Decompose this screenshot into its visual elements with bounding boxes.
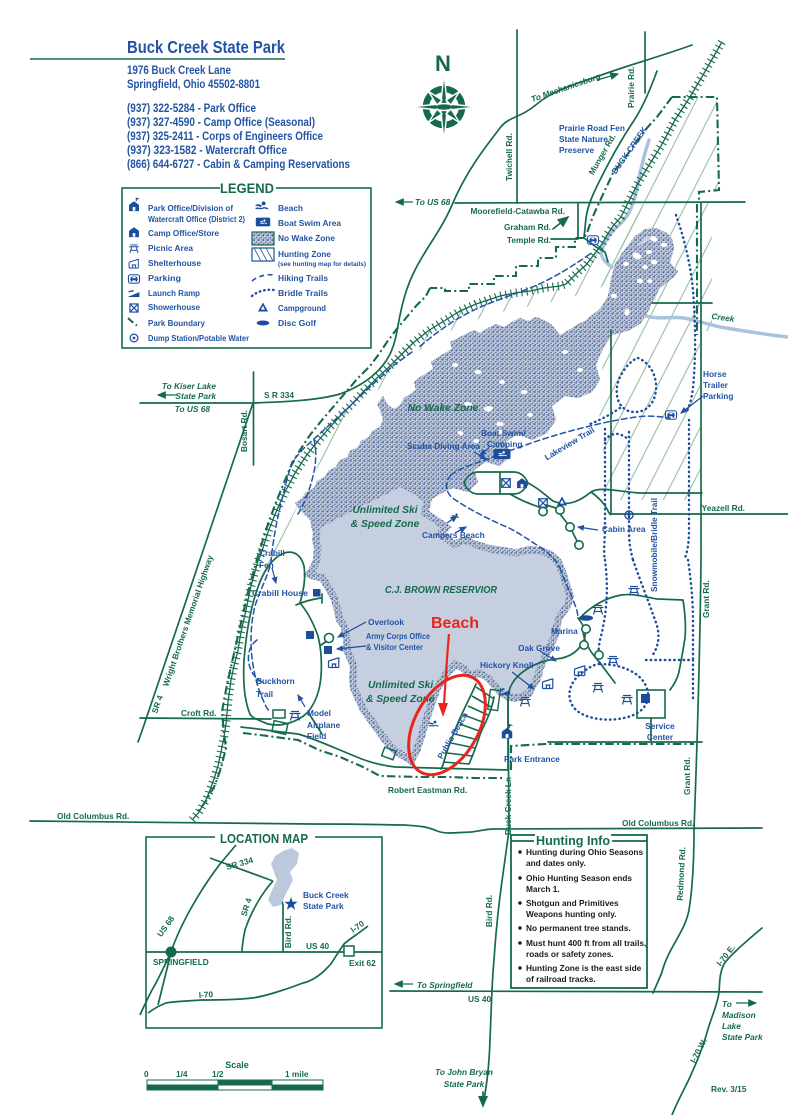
svg-text:& Visitor Center: & Visitor Center [366, 642, 424, 652]
svg-text:roads or safety zones.: roads or safety zones. [526, 949, 614, 959]
svg-text:Hickory Knoll: Hickory Knoll [480, 660, 533, 670]
svg-text:Launch Ramp: Launch Ramp [148, 289, 200, 298]
svg-text:Unlimited Ski: Unlimited Ski [368, 680, 434, 691]
svg-text:Crabill House: Crabill House [252, 588, 308, 598]
svg-text:and dates only.: and dates only. [526, 858, 586, 868]
svg-text:LOCATION MAP: LOCATION MAP [220, 832, 308, 846]
svg-text:No Wake Zone: No Wake Zone [278, 234, 336, 243]
svg-text:Scale: Scale [225, 1060, 249, 1070]
svg-text:Park Office/Division of: Park Office/Division of [148, 204, 233, 213]
svg-text:Preserve: Preserve [559, 145, 594, 155]
svg-text:Graham Rd.: Graham Rd. [504, 222, 551, 232]
svg-text:Park Boundary: Park Boundary [148, 319, 206, 328]
svg-text:Buckhorn: Buckhorn [256, 676, 295, 686]
svg-text:Boat Swim/: Boat Swim/ [481, 428, 526, 438]
svg-text:SPRINGFIELD: SPRINGFIELD [153, 957, 209, 967]
svg-text:State Park: State Park [303, 901, 344, 911]
svg-text:State Nature: State Nature [559, 134, 608, 144]
svg-text:Marina: Marina [551, 626, 578, 636]
svg-text:LEGEND: LEGEND [220, 181, 274, 196]
svg-text:Fen: Fen [259, 560, 274, 570]
svg-text:To US 68: To US 68 [175, 404, 211, 414]
svg-text:Field: Field [307, 731, 326, 741]
svg-text:Bird Rd.: Bird Rd. [484, 895, 494, 927]
svg-text:Parking: Parking [148, 274, 181, 283]
svg-text:Shotgun and Primitives: Shotgun and Primitives [526, 898, 619, 908]
svg-text:Grant Rd.: Grant Rd. [701, 580, 711, 618]
svg-text:Camping: Camping [487, 439, 523, 449]
svg-text:To John Bryan: To John Bryan [435, 1067, 493, 1077]
svg-text:Parking: Parking [703, 391, 733, 401]
svg-text:(937) 327-4590 - Camp Office (: (937) 327-4590 - Camp Office (Seasonal) [127, 117, 315, 129]
svg-text:Service: Service [645, 721, 675, 731]
svg-text:Bridle Trails: Bridle Trails [278, 289, 329, 298]
svg-text:Hunting Zone is the east side: Hunting Zone is the east side [526, 963, 642, 973]
svg-text:Exit 62: Exit 62 [349, 958, 376, 968]
svg-text:Hunting during Ohio Seasons: Hunting during Ohio Seasons [526, 847, 643, 857]
svg-text:S R 334: S R 334 [264, 390, 294, 400]
svg-text:Prairie Road Fen: Prairie Road Fen [559, 123, 625, 133]
svg-text:Crabill: Crabill [259, 548, 285, 558]
svg-text:Old Columbus Rd.: Old Columbus Rd. [57, 811, 129, 821]
svg-text:Oak Grove: Oak Grove [518, 643, 560, 653]
svg-text:Unlimited Ski: Unlimited Ski [352, 505, 418, 516]
svg-text:1/2: 1/2 [212, 1069, 224, 1079]
svg-text:State Park: State Park [175, 391, 216, 401]
svg-text:& Speed Zone: & Speed Zone [351, 519, 420, 530]
svg-text:State Park: State Park [444, 1079, 485, 1089]
svg-text:To US 68: To US 68 [415, 197, 451, 207]
svg-text:Buck Creek State Park: Buck Creek State Park [127, 37, 285, 57]
svg-text:Madison: Madison [722, 1010, 756, 1020]
svg-text:Buck Creek: Buck Creek [303, 890, 349, 900]
svg-text:Bird Rd.: Bird Rd. [283, 916, 293, 948]
svg-text:Showerhouse: Showerhouse [148, 303, 201, 312]
svg-text:Trail: Trail [256, 689, 273, 699]
svg-text:US 40: US 40 [306, 941, 329, 951]
svg-text:State Park: State Park [722, 1032, 763, 1042]
svg-text:0: 0 [144, 1069, 149, 1079]
svg-text:Center: Center [647, 732, 674, 742]
svg-text:1976 Buck Creek Lane: 1976 Buck Creek Lane [127, 65, 231, 77]
svg-text:Bosart Rd.: Bosart Rd. [239, 410, 249, 452]
svg-text:Prairie Rd.: Prairie Rd. [626, 66, 636, 108]
svg-text:Twichell Rd.: Twichell Rd. [504, 133, 514, 181]
svg-text:Picnic Area: Picnic Area [148, 244, 194, 253]
svg-text:US 40: US 40 [468, 994, 491, 1004]
svg-text:No Wake Zone: No Wake Zone [408, 403, 479, 414]
svg-text:Army Corps Office: Army Corps Office [366, 631, 430, 641]
svg-text:Old Columbus Rd.: Old Columbus Rd. [622, 818, 694, 828]
svg-text:Weapons hunting only.: Weapons hunting only. [526, 909, 617, 919]
svg-text:To Kiser Lake: To Kiser Lake [162, 381, 216, 391]
svg-text:Buck Creek Ln: Buck Creek Ln [503, 777, 513, 835]
svg-text:Horse: Horse [703, 369, 727, 379]
svg-text:Moorefield-Catawba Rd.: Moorefield-Catawba Rd. [471, 206, 566, 216]
svg-text:Temple Rd.: Temple Rd. [507, 235, 551, 245]
svg-text:Airplane: Airplane [307, 720, 341, 730]
svg-text:March 1.: March 1. [526, 884, 560, 894]
svg-text:Grant Rd.: Grant Rd. [682, 757, 692, 795]
svg-text:Boat Swim Area: Boat Swim Area [278, 219, 342, 228]
svg-text:Campground: Campground [278, 304, 326, 313]
svg-text:Hunting Zone: Hunting Zone [278, 250, 332, 259]
svg-text:Dump Station/Potable Water: Dump Station/Potable Water [148, 334, 249, 343]
svg-text:Beach: Beach [431, 615, 479, 632]
svg-text:Model: Model [307, 708, 331, 718]
svg-text:(866) 644-6727 - Cabin & Campi: (866) 644-6727 - Cabin & Camping Reserva… [127, 159, 350, 171]
svg-text:(see hunting map for details): (see hunting map for details) [278, 261, 366, 268]
svg-text:C.J. BROWN RESERVIOR: C.J. BROWN RESERVIOR [385, 585, 497, 596]
svg-text:Springfield, Ohio 45502-8801: Springfield, Ohio 45502-8801 [127, 79, 260, 91]
svg-text:I-70: I-70 [198, 989, 213, 1000]
svg-text:1/4: 1/4 [176, 1069, 188, 1079]
svg-text:Overlook: Overlook [368, 617, 404, 627]
svg-text:Yeazell Rd.: Yeazell Rd. [702, 503, 745, 513]
svg-text:Watercraft Office (District 2): Watercraft Office (District 2) [148, 215, 245, 224]
svg-text:To: To [722, 999, 732, 1009]
svg-text:(937) 322-5284 - Park Office: (937) 322-5284 - Park Office [127, 103, 256, 115]
svg-text:Campers Beach: Campers Beach [422, 530, 485, 540]
svg-text:of railroad tracks.: of railroad tracks. [526, 974, 596, 984]
svg-text:Hunting Info: Hunting Info [536, 834, 610, 848]
svg-text:(937) 323-1582 - Watercraft Of: (937) 323-1582 - Watercraft Office [127, 145, 287, 157]
svg-text:Lake: Lake [722, 1021, 741, 1031]
svg-text:Beach: Beach [278, 204, 303, 213]
svg-text:Rev. 3/15: Rev. 3/15 [711, 1084, 747, 1094]
svg-text:Scuba Diving Area: Scuba Diving Area [407, 441, 480, 451]
svg-text:Hiking Trails: Hiking Trails [278, 274, 329, 283]
svg-text:N: N [435, 51, 451, 76]
svg-text:(937) 325-2411 - Corps of Engi: (937) 325-2411 - Corps of Engineers Offi… [127, 131, 323, 143]
svg-text:To Springfield: To Springfield [417, 980, 473, 990]
svg-text:Snowmobile/Bridle Trail: Snowmobile/Bridle Trail [649, 498, 659, 592]
svg-text:Ohio Hunting Season ends: Ohio Hunting Season ends [526, 873, 632, 883]
svg-text:Robert Eastman Rd.: Robert Eastman Rd. [388, 785, 467, 795]
svg-text:Disc Golf: Disc Golf [278, 319, 316, 328]
svg-text:1 mile: 1 mile [285, 1069, 309, 1079]
svg-text:Camp Office/Store: Camp Office/Store [148, 229, 220, 238]
svg-text:Cabin Area: Cabin Area [602, 524, 646, 534]
svg-text:No permanent tree stands.: No permanent tree stands. [526, 923, 631, 933]
svg-text:Croft Rd.: Croft Rd. [181, 708, 217, 718]
svg-text:Park Entrance: Park Entrance [504, 754, 560, 764]
svg-text:Shelterhouse: Shelterhouse [148, 259, 202, 268]
svg-text:Trailer: Trailer [703, 380, 729, 390]
svg-text:Must hunt 400 ft from all trai: Must hunt 400 ft from all trails, [526, 938, 646, 948]
